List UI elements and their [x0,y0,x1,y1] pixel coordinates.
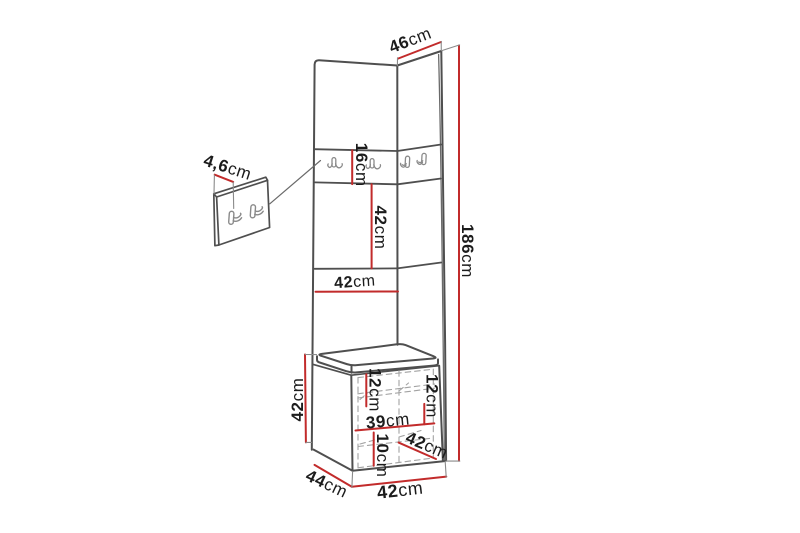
svg-text:42cm: 42cm [334,272,377,292]
svg-text:39cm: 39cm [365,409,411,432]
svg-text:42cm: 42cm [371,206,390,250]
svg-text:10cm: 10cm [373,434,392,478]
svg-text:12cm: 12cm [423,374,442,418]
svg-text:46cm: 46cm [386,23,434,57]
svg-text:42cm: 42cm [376,478,424,503]
svg-text:42cm: 42cm [288,378,307,422]
svg-text:186cm: 186cm [458,224,477,278]
svg-text:16cm: 16cm [352,143,371,187]
svg-text:12cm: 12cm [365,368,384,412]
